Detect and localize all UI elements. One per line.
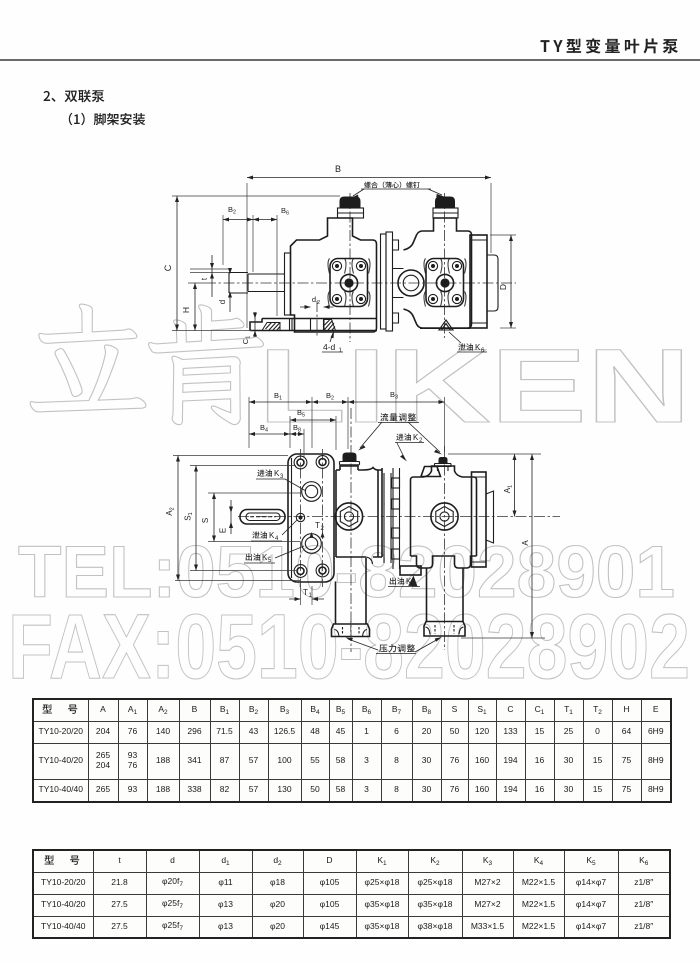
svg-text:d: d (312, 295, 316, 304)
svg-text:T: T (303, 588, 308, 597)
svg-text:E: E (219, 528, 228, 533)
svg-text:H: H (181, 307, 191, 313)
svg-text:4-d: 4-d (323, 342, 336, 352)
svg-text:2: 2 (317, 300, 320, 306)
svg-text:A: A (521, 540, 530, 546)
svg-text:D: D (498, 284, 508, 290)
svg-text:S: S (201, 518, 210, 523)
svg-text:d: d (218, 300, 227, 304)
svg-text:B: B (335, 164, 341, 174)
svg-text:T: T (315, 521, 320, 530)
svg-text:FAX:0510-82028902: FAX:0510-82028902 (8, 596, 690, 698)
svg-text:C: C (163, 264, 173, 271)
